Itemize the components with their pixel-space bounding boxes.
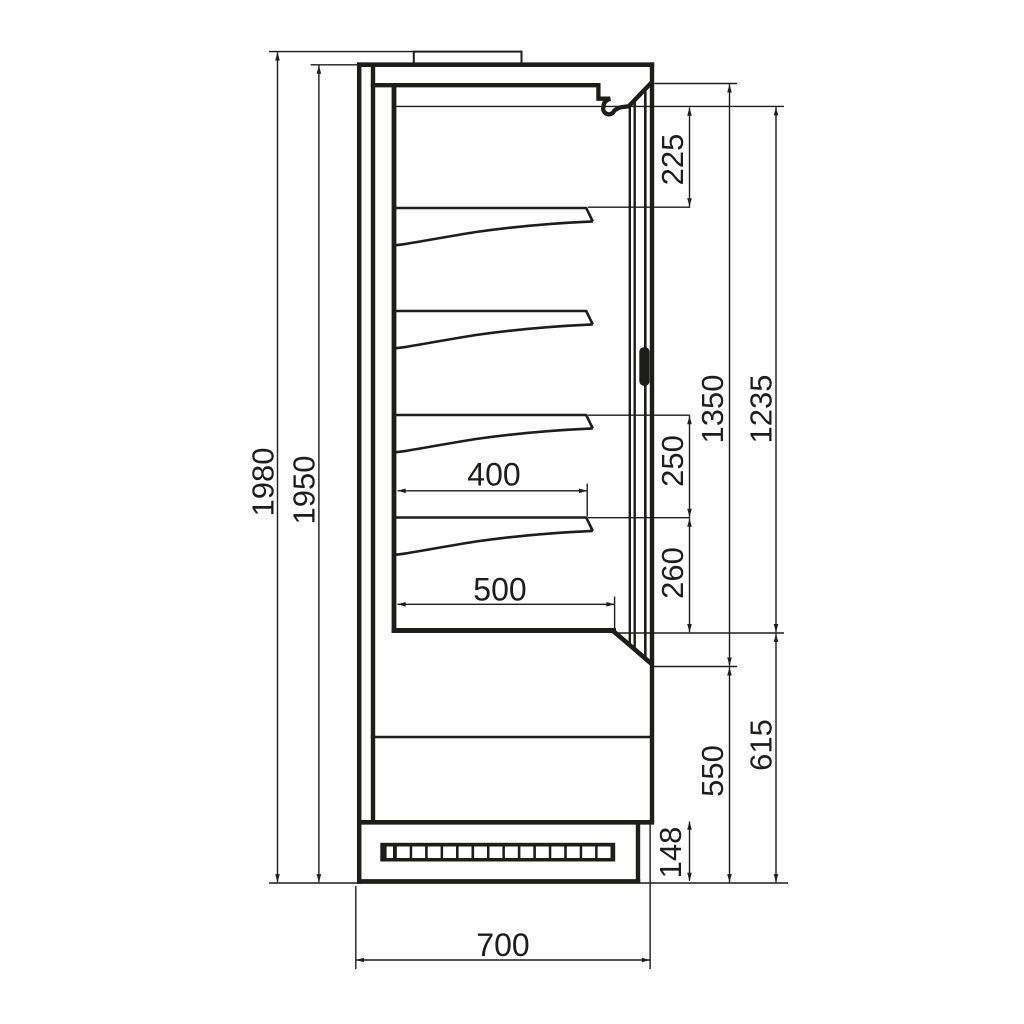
svg-text:260: 260 <box>655 547 690 599</box>
svg-text:250: 250 <box>655 435 690 487</box>
svg-text:148: 148 <box>653 827 688 879</box>
svg-text:400: 400 <box>467 457 520 493</box>
svg-text:1950: 1950 <box>287 456 322 525</box>
svg-text:1235: 1235 <box>744 375 779 444</box>
svg-text:1350: 1350 <box>695 375 730 444</box>
svg-text:225: 225 <box>655 134 690 186</box>
svg-text:550: 550 <box>695 745 730 797</box>
svg-text:1980: 1980 <box>246 448 281 517</box>
svg-text:700: 700 <box>476 927 529 963</box>
svg-text:500: 500 <box>473 572 526 608</box>
svg-text:615: 615 <box>744 719 779 771</box>
